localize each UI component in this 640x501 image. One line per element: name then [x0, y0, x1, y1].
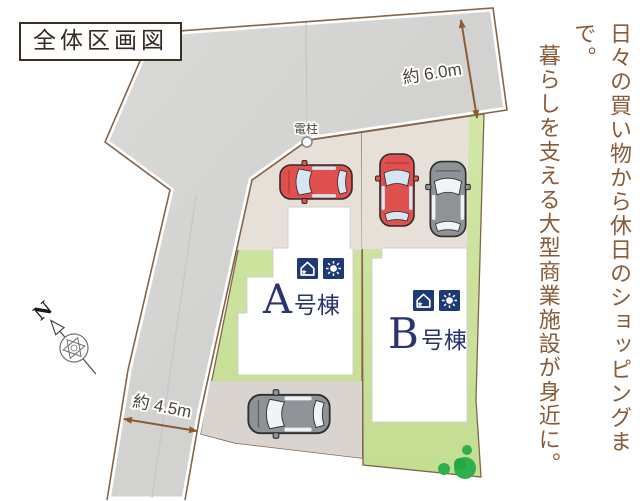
site-plan-page: 約 6.0m 約 4.5m 電柱 N ★ A号棟 ★ B号棟 全体区画図 日々の…: [0, 0, 640, 501]
car-gray-plot-a: [248, 390, 329, 439]
caption-line-2: 暮らしを支える大型商業施設が身近に。: [529, 22, 565, 494]
car-red-plot-b: [376, 154, 419, 226]
house-star-glyph: ★: [417, 300, 424, 309]
utility-pole-label: 電柱: [294, 121, 318, 136]
sun-icon: [439, 290, 460, 311]
house-star-glyph: ★: [301, 268, 308, 277]
car-red-plot-a: [280, 161, 352, 204]
sun-icon: [323, 258, 344, 279]
marketing-caption: 日々の買い物から休日のショッピングまで。 暮らしを支える大型商業施設が身近に。: [529, 22, 636, 494]
caption-line-1: 日々の買い物から休日のショッピングまで。: [565, 22, 636, 494]
compass: N: [25, 294, 106, 383]
utility-pole-marker: [302, 137, 312, 147]
plan-title-box: 全体区画図: [19, 22, 182, 61]
plan-title: 全体区画図: [33, 28, 168, 54]
car-gray-plot-b: [426, 162, 471, 237]
